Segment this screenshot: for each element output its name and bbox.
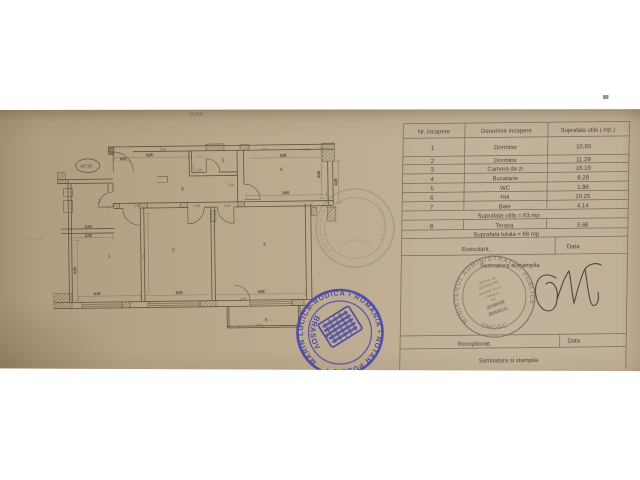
svg-text:0.90: 0.90 <box>224 204 230 208</box>
svg-text:Data: Data <box>567 244 580 250</box>
svg-text:3.40: 3.40 <box>280 153 286 157</box>
svg-text:3.40: 3.40 <box>303 148 309 152</box>
svg-text:Terasa: Terasa <box>495 223 514 229</box>
svg-text:Denumire incapere: Denumire incapere <box>481 128 532 135</box>
svg-text:1.86: 1.86 <box>577 185 589 191</box>
svg-text:6: 6 <box>181 186 184 192</box>
svg-text:Receptionat,: Receptionat, <box>458 341 492 347</box>
svg-text:Nr. incapere: Nr. incapere <box>418 129 451 135</box>
svg-text:Semnatura si stampila: Semnatura si stampila <box>479 358 539 365</box>
svg-text:3.68: 3.68 <box>577 223 589 229</box>
svg-text:Executant,: Executant, <box>462 247 491 253</box>
svg-text:Suprafata utila = 63 mp: Suprafata utila = 63 mp <box>477 213 540 220</box>
svg-text:3.30: 3.30 <box>142 254 146 260</box>
svg-text:1.60: 1.60 <box>196 168 202 172</box>
svg-text:WC: WC <box>500 186 511 192</box>
svg-text:8.28: 8.28 <box>577 175 589 181</box>
svg-text:Baie: Baie <box>499 204 512 210</box>
svg-text:0.80: 0.80 <box>228 183 234 187</box>
svg-text:2.04: 2.04 <box>85 225 92 229</box>
svg-text:8: 8 <box>265 317 268 323</box>
svg-text:4.14: 4.14 <box>577 203 589 209</box>
svg-text:1: 1 <box>108 254 111 260</box>
svg-text:0.90: 0.90 <box>194 204 200 208</box>
svg-text:3.40: 3.40 <box>283 191 290 195</box>
svg-text:Suprafata utila ( mp ): Suprafata utila ( mp ) <box>561 127 615 134</box>
svg-text:3: 3 <box>263 242 266 248</box>
svg-text:3.00: 3.00 <box>176 291 183 295</box>
svg-text:3.40: 3.40 <box>94 292 101 296</box>
svg-text:16.19: 16.19 <box>576 166 592 172</box>
svg-text:0.90: 0.90 <box>134 204 140 208</box>
svg-text:10.25: 10.25 <box>575 194 591 200</box>
svg-text:5.40: 5.40 <box>160 148 166 152</box>
svg-text:1/1.000: 1/1.000 <box>29 237 43 242</box>
svg-text:AP.30: AP.30 <box>80 163 92 168</box>
svg-text:Dormitor: Dormitor <box>494 158 517 164</box>
svg-text:7: 7 <box>98 199 101 205</box>
svg-text:0.90: 0.90 <box>120 157 126 161</box>
svg-text:4.40: 4.40 <box>334 179 338 186</box>
svg-text:4.30: 4.30 <box>258 290 265 294</box>
svg-text:0.90: 0.90 <box>240 297 246 301</box>
svg-text:5: 5 <box>222 158 225 164</box>
svg-text:2.40: 2.40 <box>85 234 92 238</box>
svg-text:Camera de zi: Camera de zi <box>487 166 523 172</box>
svg-text:2: 2 <box>172 247 175 253</box>
svg-text:Data: Data <box>567 339 580 345</box>
svg-text:3.40: 3.40 <box>317 171 321 178</box>
svg-text:2.10: 2.10 <box>262 148 268 152</box>
svg-text:1/1.000: 1/1.000 <box>189 112 204 117</box>
svg-text:Bucatarie: Bucatarie <box>492 176 518 182</box>
svg-text:Hol: Hol <box>500 195 509 201</box>
svg-text:11.29: 11.29 <box>576 157 591 163</box>
svg-text:4: 4 <box>280 167 283 173</box>
svg-text:4.40: 4.40 <box>256 323 262 327</box>
svg-text:3.40: 3.40 <box>73 267 77 274</box>
svg-text:3.25: 3.25 <box>146 153 153 157</box>
svg-text:Dormitor: Dormitor <box>494 145 517 151</box>
svg-text:10.60: 10.60 <box>576 144 592 150</box>
svg-text:Suprafata totala = 66 mp: Suprafata totala = 66 mp <box>473 232 540 239</box>
